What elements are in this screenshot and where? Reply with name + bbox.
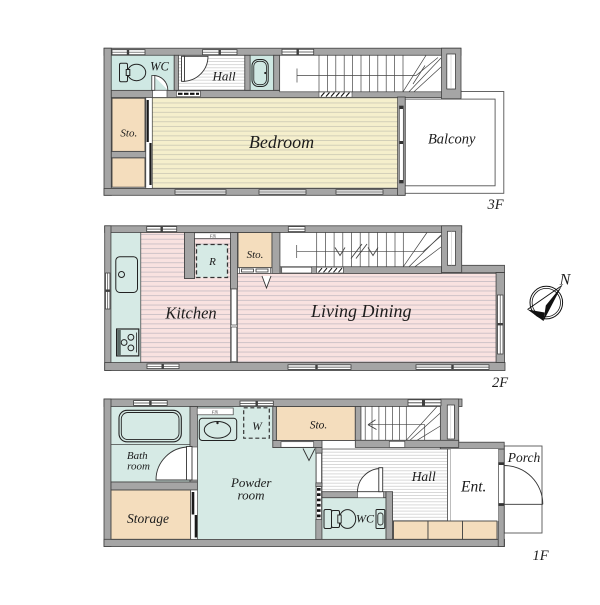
svg-text:N: N (559, 272, 572, 289)
svg-text:Living Dining: Living Dining (310, 301, 412, 321)
svg-text:room: room (238, 488, 265, 503)
svg-text:WC: WC (356, 512, 375, 526)
svg-text:Sto.: Sto. (247, 249, 264, 261)
svg-text:Bedroom: Bedroom (249, 132, 314, 152)
svg-text:2F: 2F (492, 375, 508, 391)
svg-text:Hall: Hall (211, 69, 236, 84)
svg-text:W: W (252, 421, 263, 433)
svg-text:Hall: Hall (411, 469, 436, 484)
svg-text:1F: 1F (532, 548, 548, 564)
svg-text:FIX: FIX (211, 409, 219, 414)
svg-text:Storage: Storage (127, 511, 169, 526)
svg-text:FIX: FIX (209, 233, 217, 238)
svg-text:Sto.: Sto. (120, 128, 137, 140)
svg-text:room: room (127, 461, 150, 473)
svg-text:R: R (208, 256, 216, 268)
svg-text:Balcony: Balcony (428, 132, 476, 148)
svg-text:Sto.: Sto. (310, 420, 328, 432)
svg-text:Porch: Porch (507, 450, 541, 465)
svg-text:Ent.: Ent. (460, 479, 486, 496)
svg-text:WC: WC (150, 60, 169, 74)
svg-text:Kitchen: Kitchen (164, 304, 216, 323)
svg-text:3F: 3F (486, 197, 503, 213)
